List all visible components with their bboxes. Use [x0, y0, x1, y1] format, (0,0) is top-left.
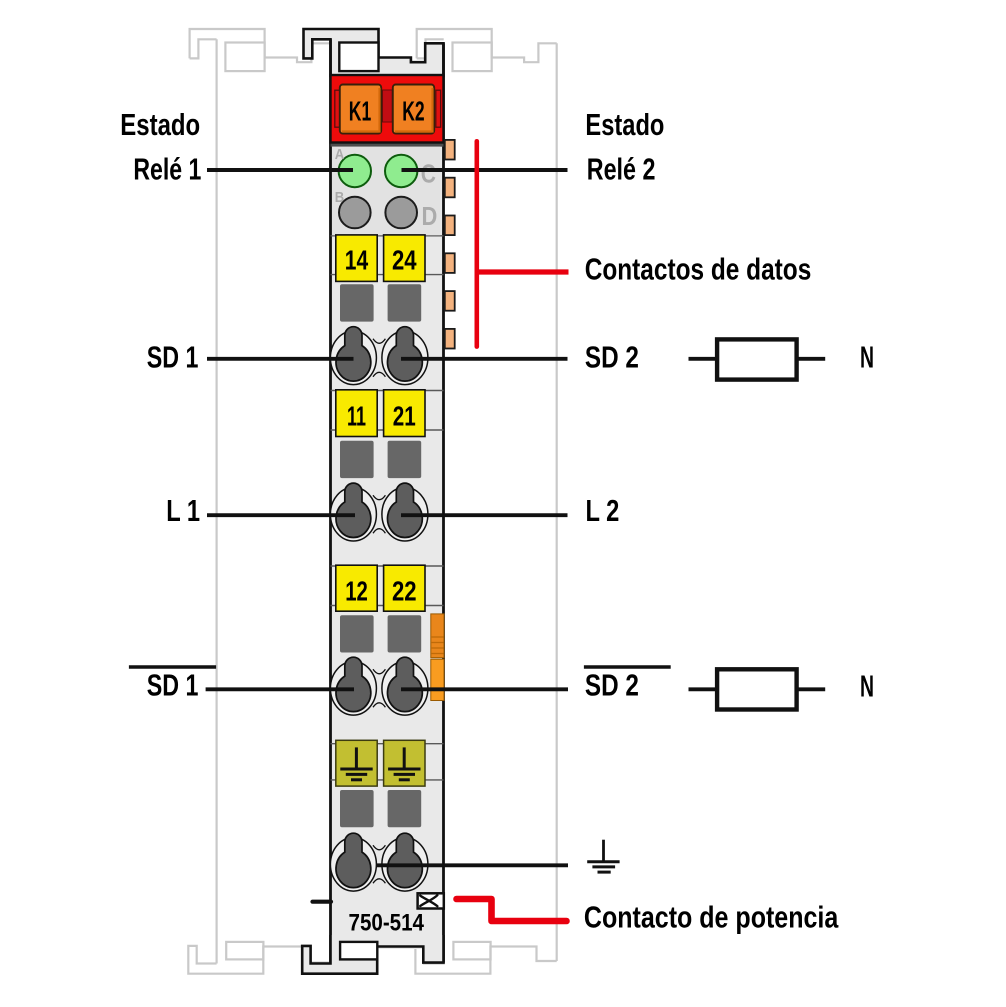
svg-text:SD 1: SD 1 [147, 340, 199, 375]
svg-text:11: 11 [347, 400, 366, 431]
svg-text:750-514: 750-514 [349, 910, 425, 937]
svg-text:B: B [335, 189, 345, 206]
svg-text:Relé 1: Relé 1 [133, 151, 201, 186]
svg-text:14: 14 [345, 244, 369, 275]
svg-text:L 2: L 2 [586, 493, 620, 528]
svg-text:Contacto de potencia: Contacto de potencia [584, 899, 839, 934]
svg-text:SD 2: SD 2 [585, 340, 639, 375]
svg-text:SD 1: SD 1 [147, 668, 199, 703]
svg-text:K2: K2 [402, 96, 424, 127]
svg-text:Estado: Estado [585, 107, 664, 142]
svg-text:12: 12 [345, 576, 368, 607]
svg-text:24: 24 [392, 244, 417, 275]
svg-text:K1: K1 [349, 96, 371, 127]
svg-text:C: C [421, 158, 436, 188]
svg-text:21: 21 [393, 400, 416, 431]
svg-text:Estado: Estado [120, 107, 200, 142]
svg-text:N: N [860, 340, 874, 375]
svg-text:N: N [860, 669, 874, 704]
svg-text:Relé 2: Relé 2 [587, 151, 656, 186]
svg-text:L 1: L 1 [166, 493, 200, 528]
svg-text:D: D [422, 201, 438, 231]
svg-text:A: A [335, 146, 345, 163]
svg-text:22: 22 [392, 576, 417, 607]
svg-text:SD 2: SD 2 [585, 668, 639, 703]
svg-text:Contactos de datos: Contactos de datos [585, 252, 812, 287]
